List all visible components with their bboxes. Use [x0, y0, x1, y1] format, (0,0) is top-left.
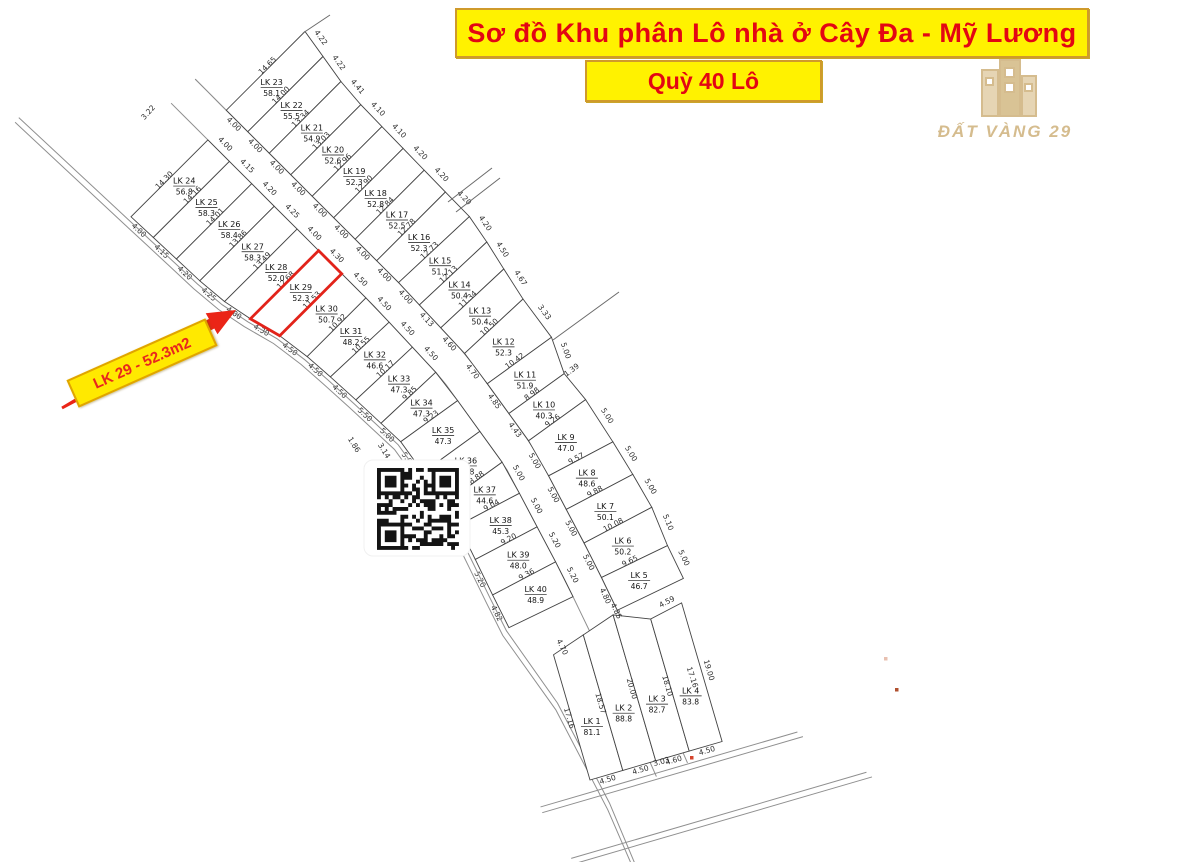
plot-label-LK-10: LK 10 — [533, 400, 555, 409]
brand-name: ĐẤT VÀNG 29 — [920, 122, 1090, 142]
dim-back-LK-21: 4.41 — [349, 77, 367, 96]
brand-logo: ĐẤT VÀNG 29 — [920, 56, 1090, 144]
plot-area-LK-4: 83.8 — [682, 697, 699, 706]
plot-label-LK-40: LK 40 — [524, 585, 546, 594]
plot-label-LK-11: LK 11 — [514, 371, 536, 380]
title-banner: Sơ đồ Khu phân Lô nhà ở Cây Đa - Mỹ Lươn… — [455, 8, 1089, 58]
plot-label-LK-38: LK 38 — [489, 516, 511, 525]
plot-label-LK-17: LK 17 — [386, 210, 408, 219]
dim-back-LK-11: 5.00 — [559, 341, 573, 360]
plot-area-LK-1: 81.1 — [584, 728, 601, 737]
plot-label-LK-28: LK 28 — [265, 263, 287, 272]
plot-label-LK-33: LK 33 — [388, 375, 410, 384]
dim-back-LK-8: 5.00 — [623, 444, 639, 463]
subtitle-text: Quỳ 40 Lô — [648, 68, 759, 95]
plot-area-LK-12: 52.3 — [495, 348, 512, 357]
plot-label-LK-15: LK 15 — [429, 256, 451, 265]
plot-label-LK-19: LK 19 — [343, 167, 365, 176]
plot-label-LK-27: LK 27 — [241, 242, 263, 251]
dim-back-LK-23: 4.22 — [312, 28, 329, 47]
plot-area-LK-6: 50.2 — [614, 548, 631, 557]
plot-label-LK-5: LK 5 — [630, 571, 647, 580]
plot-label-LK-1: LK 1 — [583, 717, 600, 726]
plot-area-LK-5: 46.7 — [631, 582, 648, 591]
plot-label-LK-26: LK 26 — [218, 220, 240, 229]
stray-dot — [895, 688, 899, 692]
outer-road-outer-line — [15, 122, 634, 862]
plot-label-LK-30: LK 30 — [315, 304, 337, 313]
plot-label-LK-35: LK 35 — [432, 426, 454, 435]
dim-back-LK-5: 5.00 — [676, 548, 691, 567]
plot-label-LK-22: LK 22 — [280, 101, 302, 110]
dim-back-LK-9: 5.00 — [599, 406, 616, 425]
plot-label-LK-13: LK 13 — [469, 307, 491, 316]
dim-front-LK-39: 5.20 — [547, 530, 563, 549]
stray-dim-2: 1.86 — [346, 435, 363, 454]
dim-back-LK-6: 5.10 — [661, 513, 676, 532]
plot-label-LK-31: LK 31 — [340, 327, 362, 336]
dim-back-LK-15: 4.20 — [477, 214, 494, 233]
stray-dim-0: 3.22 — [139, 103, 157, 122]
plot-label-LK-9: LK 9 — [557, 433, 574, 442]
plot-label-LK-25: LK 25 — [195, 198, 217, 207]
buildings-icon — [920, 56, 1090, 122]
dim-back-LK-7: 5.00 — [643, 477, 659, 496]
boundary-stub-line — [553, 292, 619, 340]
stray-dim-1: 1.39 — [562, 361, 581, 378]
plot-label-LK-12: LK 12 — [492, 337, 514, 346]
plot-label-LK-2: LK 2 — [615, 704, 632, 713]
far-bottom-road-line — [573, 777, 872, 862]
plot-area-LK-9: 47.0 — [557, 444, 574, 453]
plot-label-LK-39: LK 39 — [507, 551, 529, 560]
outer-road-inner-line — [19, 118, 636, 862]
subtitle-banner: Quỳ 40 Lô — [585, 60, 822, 102]
title-text: Sơ đồ Khu phân Lô nhà ở Cây Đa - Mỹ Lươn… — [467, 18, 1076, 49]
plot-label-LK-29: LK 29 — [290, 283, 312, 292]
plot-area-LK-3: 82.7 — [649, 706, 666, 715]
stray-dot — [884, 657, 888, 661]
plot-label-LK-32: LK 32 — [364, 350, 386, 359]
plot-area-LK-35: 47.3 — [435, 437, 452, 446]
plot-label-LK-14: LK 14 — [448, 280, 470, 289]
plot-label-LK-24: LK 24 — [173, 177, 195, 186]
plot-label-LK-16: LK 16 — [408, 233, 430, 242]
plot-label-LK-4: LK 4 — [682, 686, 699, 695]
plot-label-LK-7: LK 7 — [597, 502, 614, 511]
plot-area-LK-2: 88.8 — [615, 715, 632, 724]
dim-back-LK-12: 3.33 — [536, 303, 553, 322]
plot-label-LK-20: LK 20 — [322, 146, 344, 155]
dim-front-LK-38: 5.00 — [529, 496, 545, 515]
plot-label-LK-37: LK 37 — [474, 485, 496, 494]
stray-dim-3: 3.14 — [376, 441, 393, 460]
plot-label-LK-3: LK 3 — [648, 695, 665, 704]
plot-area-LK-40: 48.9 — [527, 596, 544, 605]
plot-label-LK-8: LK 8 — [578, 469, 595, 478]
dim-back-LK-22: 4.22 — [330, 53, 347, 72]
dim-front-LK-40: 5.20 — [565, 566, 581, 585]
dim-back-LK-14: 4.50 — [494, 240, 511, 259]
plot-label-LK-21: LK 21 — [301, 124, 323, 133]
stray-dot — [690, 756, 694, 760]
plot-label-LK-18: LK 18 — [364, 189, 386, 198]
plot-label-LK-23: LK 23 — [260, 78, 282, 87]
plot-label-LK-6: LK 6 — [614, 537, 631, 546]
land-plot-map-page: LK 2456.814.1614.304.004.00LK 2558.314.0… — [0, 0, 1200, 862]
plot-label-LK-34: LK 34 — [410, 399, 432, 408]
dim-back-LK-13: 4.67 — [512, 268, 529, 287]
dim-front-LK-37: 5.00 — [511, 463, 527, 482]
